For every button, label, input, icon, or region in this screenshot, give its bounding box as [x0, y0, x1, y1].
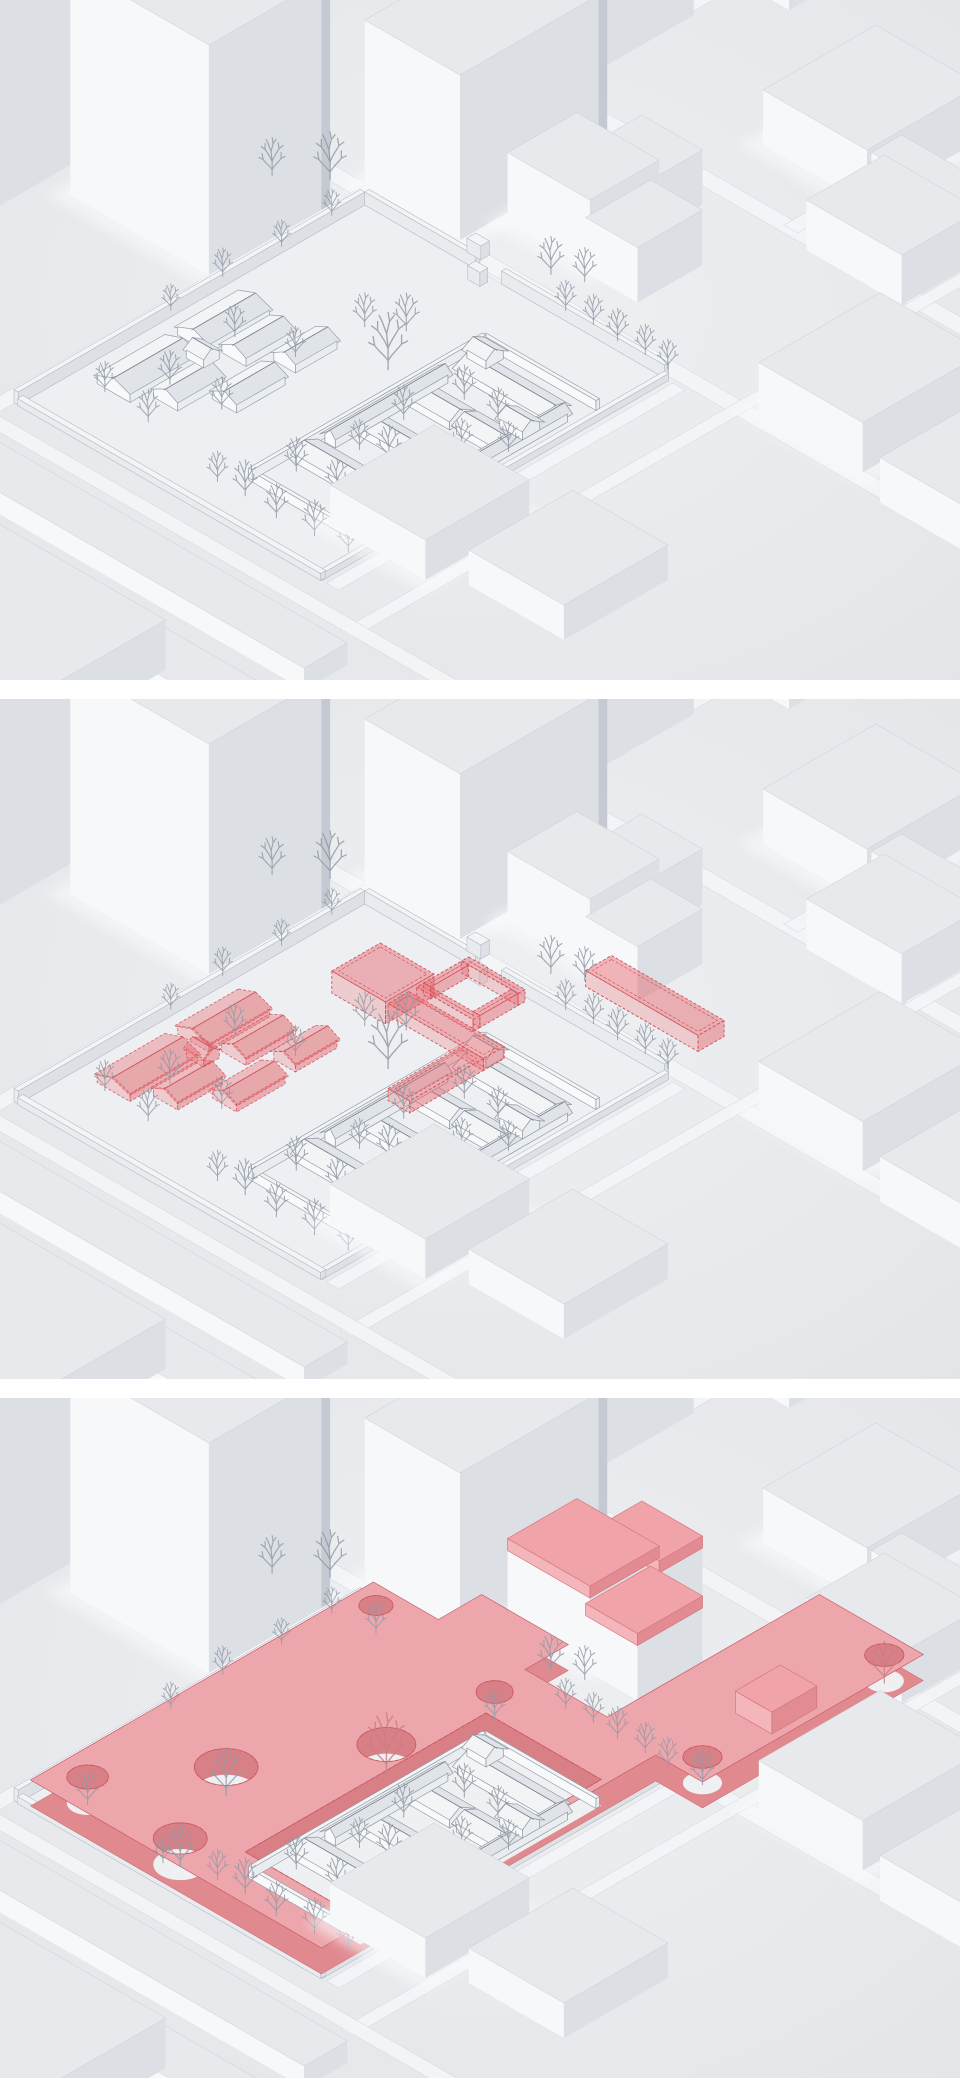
- panel-demolition-study: [0, 699, 960, 1379]
- axonometric-scene-existing: [0, 0, 960, 680]
- shadow-sliver: [321, 0, 330, 210]
- diagram-page: [0, 0, 960, 2078]
- axonometric-scene-demolition: [0, 699, 960, 1379]
- panel-proposed-plinth: [0, 1398, 960, 2078]
- axonometric-scene-proposed: [0, 1398, 960, 2078]
- shadow-sliver: [321, 1398, 330, 1608]
- panel-existing-site: [0, 0, 960, 680]
- shadow-sliver: [321, 699, 330, 909]
